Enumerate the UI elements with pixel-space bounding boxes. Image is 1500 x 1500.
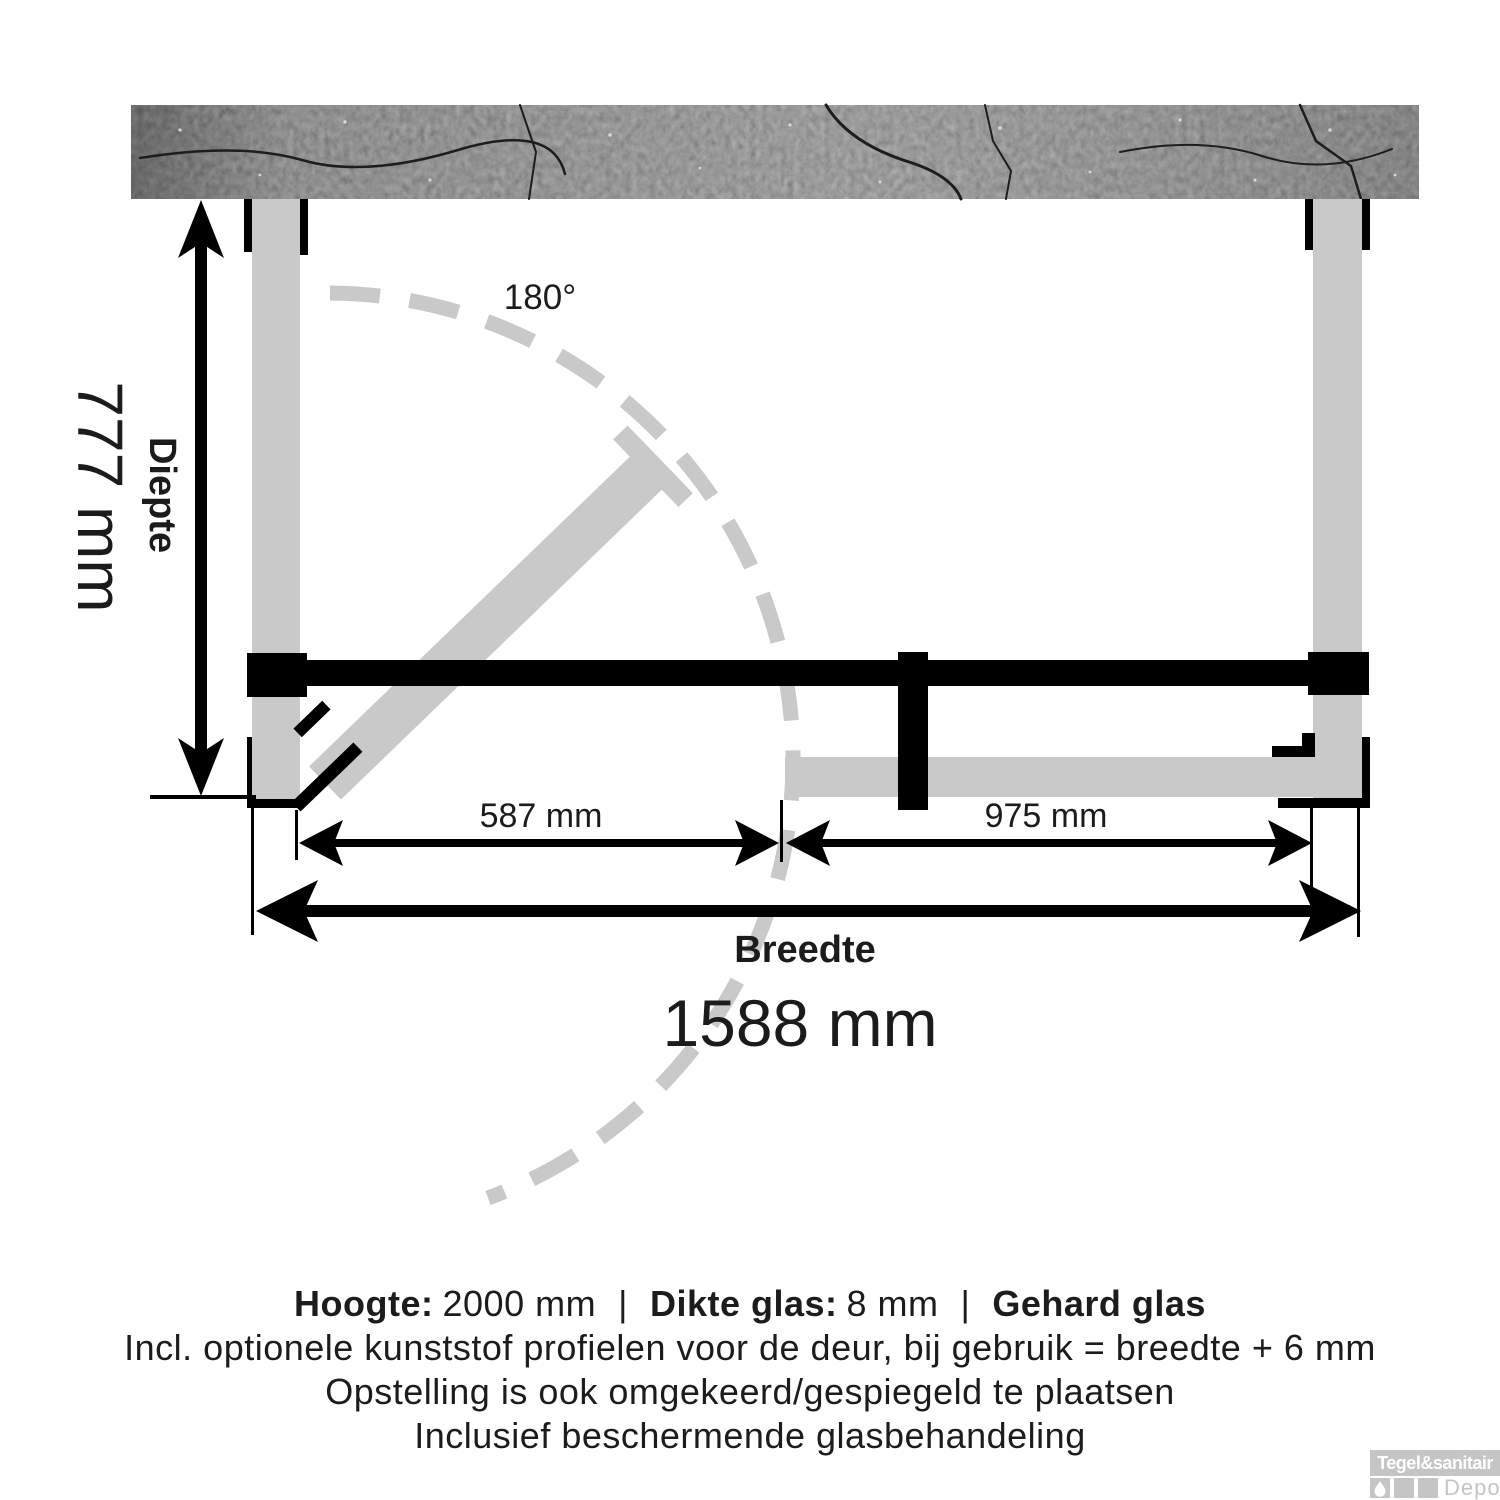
depth-label: Diepte [141,437,183,553]
right-panel-bottom-strip [1278,798,1370,808]
height-label: Hoogte: [294,1283,433,1324]
brand-name: Tegel&sanitair [1370,1450,1500,1476]
left-panel-bottom-strip [247,799,300,808]
left-side-panel [252,199,300,800]
glass-type: Gehard glas [992,1283,1206,1324]
door-angle-label: 180° [504,278,576,317]
fixed-front-panel [785,757,1362,797]
glass-thickness-value: 8 mm [847,1283,939,1324]
right-side-panel [1313,199,1362,800]
depth-dimension-shaft [195,240,207,760]
depth-value: 777 mm [64,381,136,612]
right-corner-bracket-vertical [1302,733,1315,757]
specs-line-coating: Inclusief beschermende glasbehandeling [0,1414,1500,1458]
specs-line-primary: Hoogte:2000 mm|Dikte glas:8 mm|Gehard gl… [0,1282,1500,1326]
wall-shading [131,105,1419,199]
logo-tile [1394,1478,1414,1498]
logo-tile [1418,1478,1438,1498]
diagram-canvas: Diepte 777 mm 180° 587 mm 975 mm [0,0,1500,1500]
ext-line-right-outer [1357,808,1360,937]
total-width-dimension: Breedte 1588 mm [256,880,1361,1060]
ext-line-left-outer [251,808,254,935]
stabilization-bar-right-block [1308,652,1369,695]
height-value: 2000 mm [443,1283,597,1324]
stabilization-bar [247,660,1369,686]
door-glass [309,443,675,799]
left-panel-edge-line [247,737,252,800]
droplet-icon [1370,1478,1390,1498]
specs-line-profiles: Incl. optionele kunststof profielen voor… [0,1326,1500,1370]
wall-texture [131,105,1419,199]
glass-thickness-label: Dikte glas: [650,1283,838,1324]
right-panel-wall-clamp-left [1305,199,1313,250]
left-panel-wall-clamp-left [244,199,252,252]
shower-enclosure-diagram: Diepte 777 mm 180° 587 mm 975 mm [0,0,1500,1500]
panel-dim-shaft [795,839,1303,847]
depth-bottom-tick [150,795,256,799]
depth-dimension: Diepte 777 mm [64,200,256,799]
right-panel-edge-line [1362,737,1370,808]
right-panel-wall-clamp-right [1362,199,1370,250]
brand-logo: Tegel&sanitair Depot [1370,1450,1500,1500]
specs-line-mirrored: Opstelling is ook omgekeerd/gespiegeld t… [0,1370,1500,1414]
separator: | [618,1283,628,1324]
width-dim-shaft [270,905,1350,917]
width-label: Breedte [734,929,876,971]
door-dim-shaft [308,839,770,847]
mid-connector-profile [898,652,928,810]
door-swing-arc [330,293,793,1198]
specs-caption: Hoogte:2000 mm|Dikte glas:8 mm|Gehard gl… [0,1282,1500,1458]
stabilization-bar-left-block [247,653,307,697]
ext-line-left-inner [295,810,298,860]
panel-dim-value: 975 mm [985,797,1108,835]
logo-droplet-tile [1370,1478,1390,1498]
door-dim-value: 587 mm [480,797,603,835]
brand-subname: Depot [1444,1476,1500,1500]
width-value: 1588 mm [662,986,937,1060]
left-panel-wall-clamp-right [300,199,308,255]
separator: | [961,1283,971,1324]
ext-line-middle [780,800,783,862]
